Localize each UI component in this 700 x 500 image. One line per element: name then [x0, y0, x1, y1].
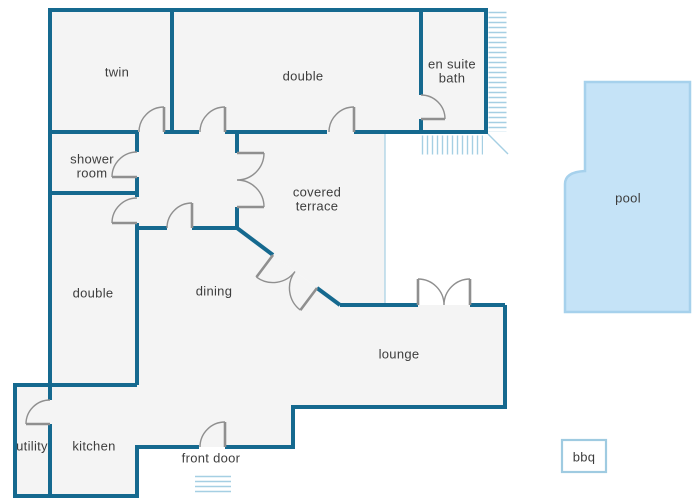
- label-utility: utility: [16, 439, 48, 454]
- ensuite-side-steps: [489, 10, 507, 132]
- label-dining: dining: [196, 284, 233, 299]
- label-shower-line2: room: [77, 166, 108, 181]
- label-terrace-line1: covered: [293, 185, 341, 200]
- steps-corner-line: [488, 134, 508, 154]
- label-double-top: double: [283, 69, 324, 84]
- label-ensuite-line1: en suite: [428, 57, 476, 72]
- label-bbq: bbq: [573, 450, 596, 465]
- floor-plan: twin double en suite bath shower room co…: [0, 0, 700, 500]
- label-lounge: lounge: [379, 347, 420, 362]
- house-footprint: [15, 8, 505, 496]
- label-kitchen: kitchen: [72, 439, 115, 454]
- label-terrace-line2: terrace: [296, 199, 339, 214]
- label-twin: twin: [105, 65, 129, 80]
- label-shower-line1: shower: [70, 152, 114, 167]
- label-ensuite-line2: bath: [439, 71, 466, 86]
- label-pool: pool: [615, 191, 641, 206]
- label-front-door: front door: [182, 451, 241, 466]
- floor-area: [15, 8, 505, 496]
- front-door-steps: [195, 477, 231, 492]
- label-double-left: double: [73, 286, 114, 301]
- ensuite-bottom-steps: [420, 136, 483, 155]
